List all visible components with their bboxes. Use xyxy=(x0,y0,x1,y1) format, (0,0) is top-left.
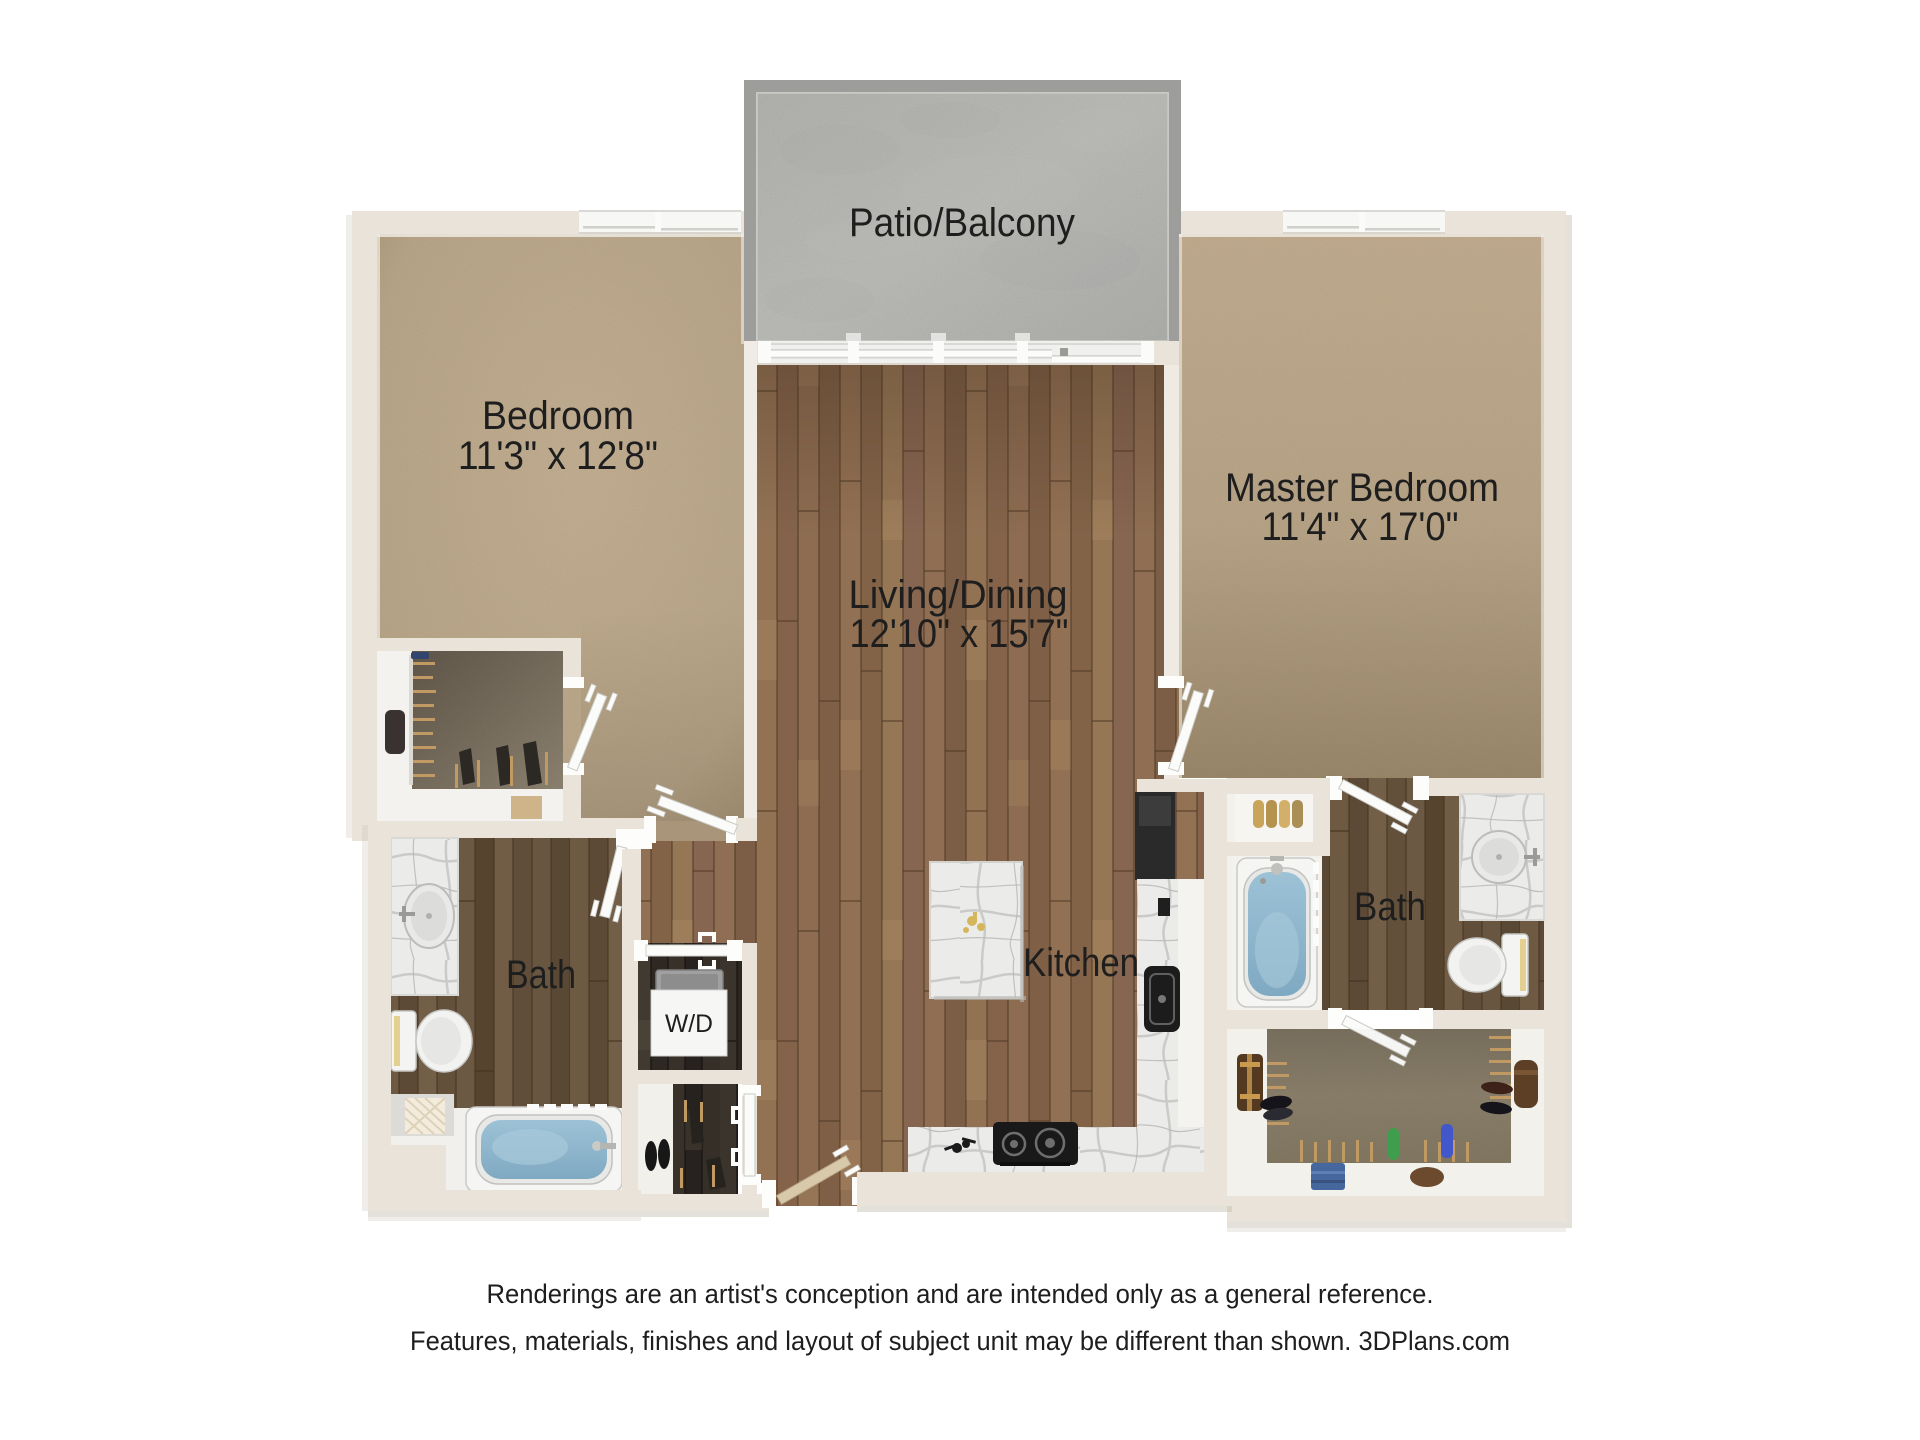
svg-text:Renderings are an artist's con: Renderings are an artist's conception an… xyxy=(487,1279,1434,1309)
svg-text:12'10" x 15'7": 12'10" x 15'7" xyxy=(850,612,1069,656)
svg-text:Features, materials, finishes: Features, materials, finishes and layout… xyxy=(410,1326,1510,1356)
svg-text:11'4" x 17'0": 11'4" x 17'0" xyxy=(1262,505,1459,549)
svg-text:Kitchen: Kitchen xyxy=(1023,941,1139,985)
svg-text:Living/Dining: Living/Dining xyxy=(849,573,1068,617)
svg-text:Bath: Bath xyxy=(1354,885,1426,929)
svg-text:Patio/Balcony: Patio/Balcony xyxy=(849,201,1075,245)
svg-text:Master Bedroom: Master Bedroom xyxy=(1225,466,1499,510)
svg-text:Bath: Bath xyxy=(506,953,576,997)
svg-text:Bedroom: Bedroom xyxy=(482,394,634,438)
svg-text:W/D: W/D xyxy=(665,1010,713,1038)
svg-text:11'3" x 12'8": 11'3" x 12'8" xyxy=(458,434,658,478)
